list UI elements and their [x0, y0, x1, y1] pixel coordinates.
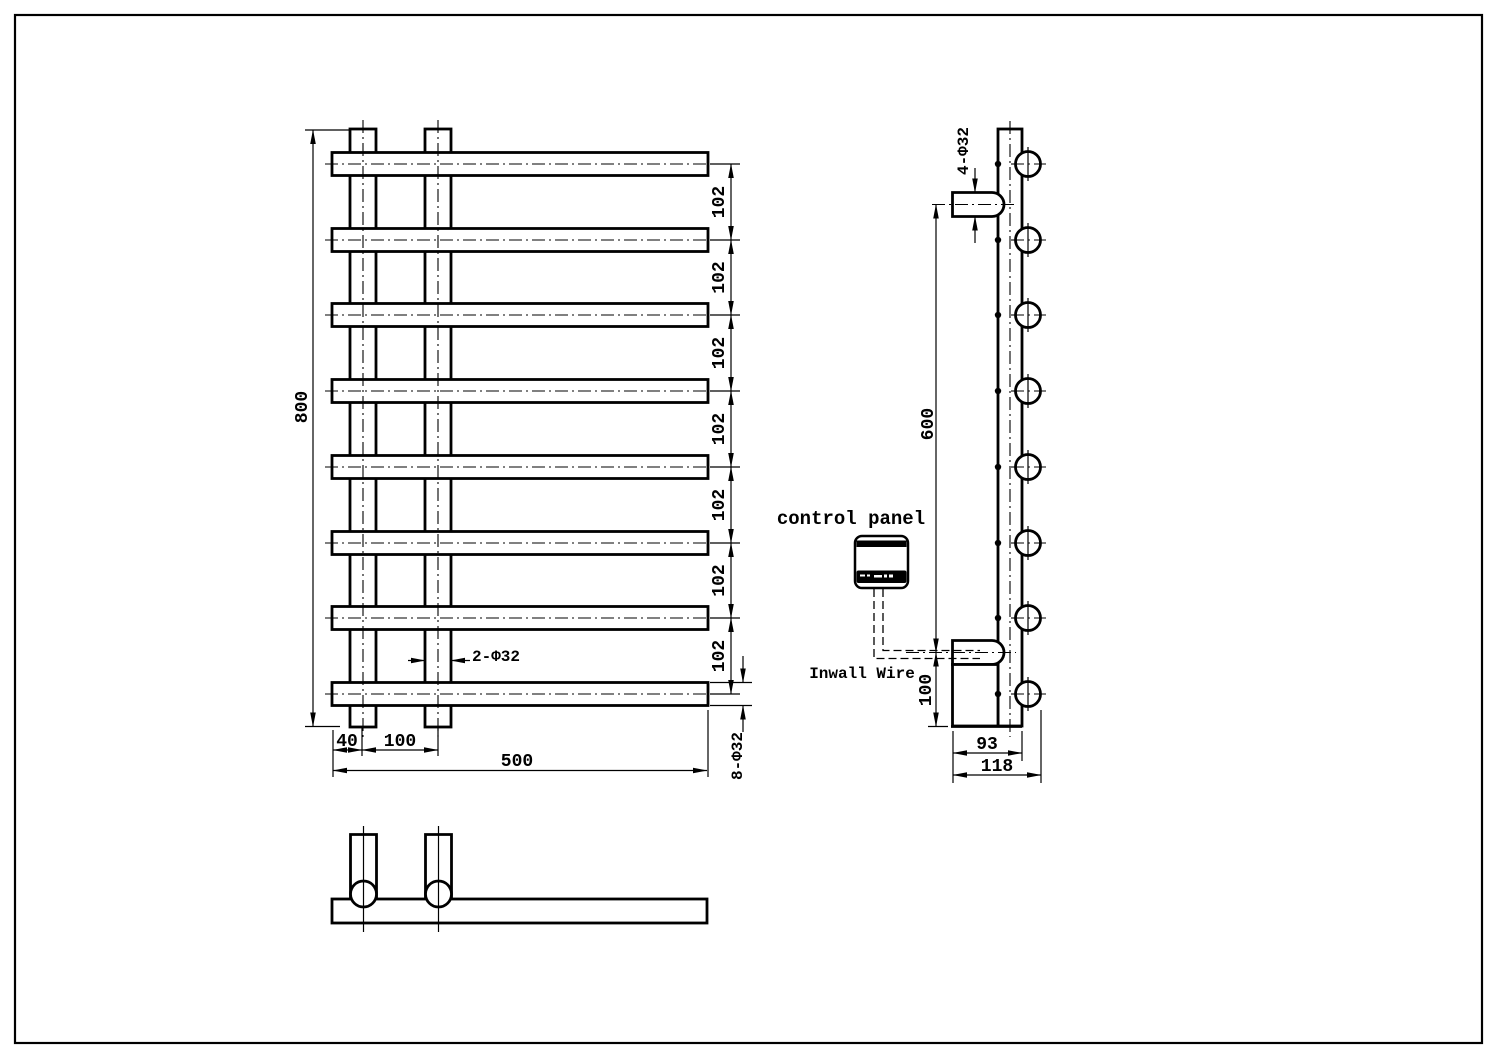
element-height-label: 100	[917, 674, 937, 706]
width-label: 500	[501, 752, 533, 772]
spacing-label-4: 102	[710, 413, 730, 445]
inwall-wire-label: Inwall Wire	[809, 665, 915, 683]
front-view: 800 102 102 102 102 102 102 102	[293, 120, 752, 780]
element-housing	[953, 665, 999, 727]
spacing-label-2: 102	[710, 261, 730, 293]
depth-overall-label: 118	[981, 757, 1013, 777]
control-panel-label: control panel	[777, 508, 925, 530]
dim-stub-spacing: 600	[919, 205, 939, 653]
dim-spacing-chain: 102 102 102 102 102 102 102	[710, 164, 740, 694]
post-spacing-label: 100	[384, 732, 416, 752]
dim-height-800: 800	[293, 130, 349, 727]
spacing-label-1: 102	[710, 186, 730, 218]
stub-spacing-label: 600	[919, 408, 939, 440]
dim-stub-diameter: 4-Φ32	[955, 127, 975, 243]
top-view	[332, 826, 707, 932]
technical-drawing: 800 102 102 102 102 102 102 102	[0, 0, 1497, 1058]
control-panel-group: control panel Inwall Wire	[777, 508, 980, 683]
stub-diameter-label: 4-Φ32	[955, 127, 973, 175]
depth-inner-label: 93	[976, 735, 998, 755]
edge-offset-label: 40	[336, 732, 358, 752]
spacing-label-5: 102	[710, 489, 730, 521]
top-bar	[332, 899, 707, 923]
dim-bottom: 40 100 500	[333, 710, 708, 777]
drawing-page: 800 102 102 102 102 102 102 102	[0, 0, 1497, 1058]
control-panel-top-strip	[857, 541, 907, 548]
bar-diameter-label: 8-Φ32	[729, 732, 747, 780]
post-diameter-label: 2-Φ32	[472, 648, 520, 666]
dim-element-height: 100	[917, 653, 948, 727]
height-label: 800	[293, 391, 313, 423]
sheet-border	[15, 15, 1482, 1043]
spacing-label-6: 102	[710, 564, 730, 596]
spacing-label-7: 102	[710, 640, 730, 672]
spacing-label-3: 102	[710, 337, 730, 369]
side-view: 4-Φ32 600 100 93 118	[906, 121, 1046, 783]
